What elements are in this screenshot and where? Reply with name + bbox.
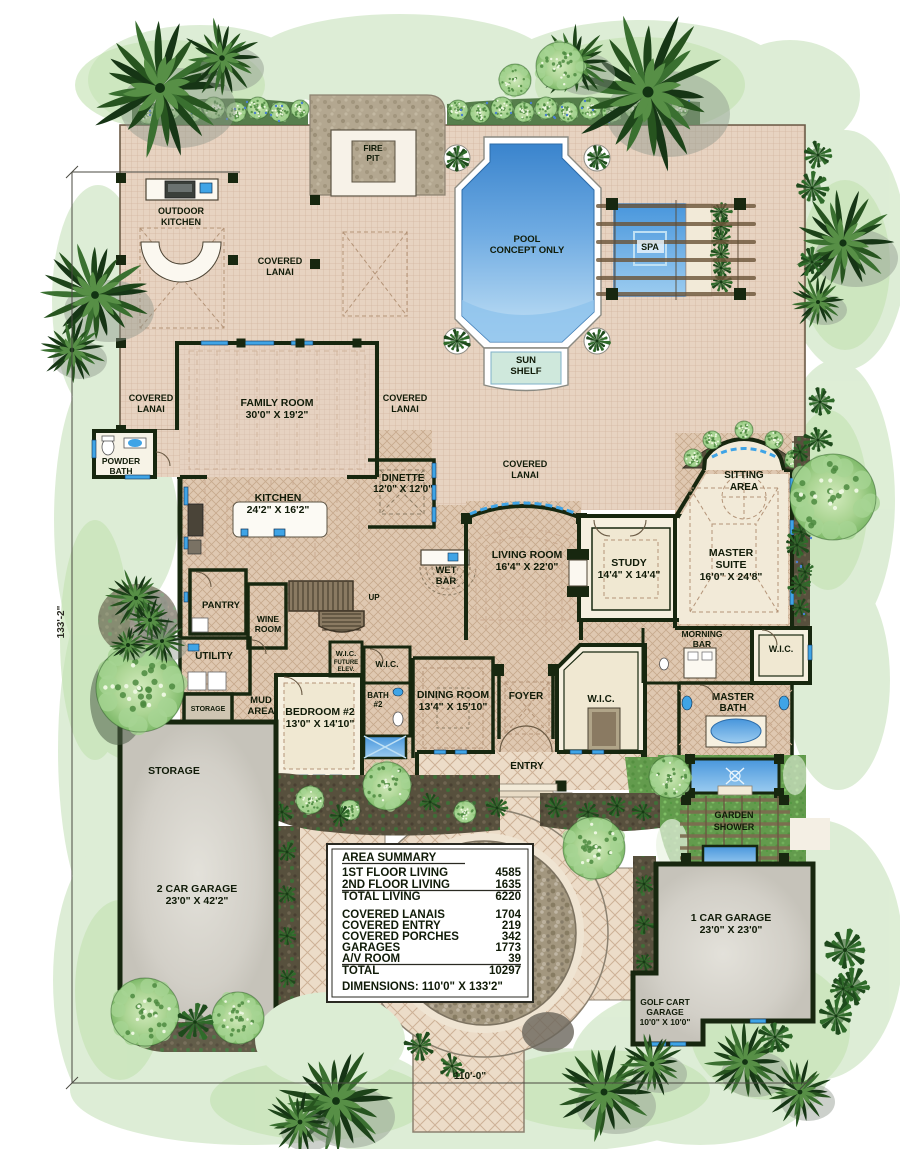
svg-text:MUD: MUD	[250, 695, 272, 706]
svg-text:LANAI: LANAI	[266, 267, 294, 277]
svg-text:110'-0": 110'-0"	[454, 1071, 486, 1082]
svg-text:W.I.C.: W.I.C.	[375, 659, 398, 669]
svg-text:AREA: AREA	[248, 706, 275, 717]
svg-text:COVERED: COVERED	[129, 393, 174, 403]
svg-text:AREA SUMMARY: AREA SUMMARY	[342, 852, 437, 864]
svg-text:W.I.C.: W.I.C.	[769, 644, 794, 654]
svg-text:GOLF CART: GOLF CART	[640, 997, 690, 1007]
svg-text:MASTER: MASTER	[712, 692, 755, 703]
svg-text:BATH: BATH	[719, 703, 746, 714]
svg-text:CONCEPT ONLY: CONCEPT ONLY	[490, 245, 565, 256]
svg-text:DIMENSIONS: 110'0" X 133'2": DIMENSIONS: 110'0" X 133'2"	[342, 981, 503, 993]
svg-text:1 CAR GARAGE: 1 CAR GARAGE	[691, 912, 772, 924]
svg-text:POOL: POOL	[514, 234, 541, 245]
svg-text:KITCHEN: KITCHEN	[255, 492, 302, 504]
svg-text:FUTURE: FUTURE	[334, 660, 358, 666]
svg-text:MORNING: MORNING	[681, 629, 722, 639]
svg-text:39: 39	[508, 953, 521, 965]
svg-text:TOTAL: TOTAL	[342, 965, 379, 977]
svg-text:W.I.C.: W.I.C.	[336, 649, 356, 658]
svg-text:10'0" X 10'0": 10'0" X 10'0"	[640, 1017, 691, 1027]
svg-text:16'0" X 24'8": 16'0" X 24'8"	[700, 571, 763, 583]
svg-text:POWDER: POWDER	[102, 456, 140, 466]
svg-text:FOYER: FOYER	[509, 691, 544, 702]
svg-text:13'0" X 14'10": 13'0" X 14'10"	[286, 718, 355, 730]
svg-text:ENTRY: ENTRY	[510, 761, 544, 772]
svg-text:SUITE: SUITE	[716, 559, 747, 571]
svg-text:OUTDOOR: OUTDOOR	[158, 206, 204, 216]
svg-text:FAMILY ROOM: FAMILY ROOM	[241, 397, 314, 409]
svg-text:12'0" X 12'0": 12'0" X 12'0"	[373, 484, 433, 495]
svg-text:LANAI: LANAI	[391, 404, 419, 414]
svg-text:2 CAR GARAGE: 2 CAR GARAGE	[157, 883, 238, 895]
svg-text:BATH: BATH	[110, 466, 133, 476]
svg-text:KITCHEN: KITCHEN	[161, 217, 201, 227]
svg-text:SHOWER: SHOWER	[714, 822, 755, 832]
svg-text:BAR: BAR	[436, 576, 457, 587]
svg-text:UP: UP	[368, 593, 380, 602]
svg-text:DINING ROOM: DINING ROOM	[417, 689, 490, 701]
svg-text:LANAI: LANAI	[137, 404, 165, 414]
svg-text:GARDEN: GARDEN	[714, 810, 753, 820]
svg-text:W.I.C.: W.I.C.	[587, 694, 614, 705]
svg-text:STORAGE: STORAGE	[191, 706, 226, 713]
svg-text:SUN: SUN	[516, 355, 536, 366]
svg-text:23'0" X 23'0": 23'0" X 23'0"	[700, 924, 763, 936]
svg-text:SITTING: SITTING	[724, 470, 764, 481]
svg-text:STORAGE: STORAGE	[148, 765, 200, 777]
svg-text:SPA: SPA	[641, 242, 659, 252]
svg-text:FIRE: FIRE	[363, 143, 383, 153]
svg-text:BAR: BAR	[693, 639, 711, 649]
svg-text:COVERED: COVERED	[503, 459, 548, 469]
svg-text:BEDROOM #2: BEDROOM #2	[285, 706, 355, 718]
svg-text:COVERED: COVERED	[383, 393, 428, 403]
svg-text:30'0" X 19'2": 30'0" X 19'2"	[246, 409, 309, 421]
svg-text:24'2" X 16'2": 24'2" X 16'2"	[247, 504, 310, 516]
svg-text:AREA: AREA	[730, 482, 758, 493]
svg-text:UTILITY: UTILITY	[195, 651, 233, 662]
svg-text:6220: 6220	[495, 891, 521, 903]
svg-text:COVERED: COVERED	[258, 256, 303, 266]
svg-text:2ND FLOOR LIVING: 2ND FLOOR LIVING	[342, 879, 450, 891]
svg-text:PANTRY: PANTRY	[202, 600, 241, 611]
svg-text:13'4" X 15'10": 13'4" X 15'10"	[419, 701, 488, 713]
svg-text:SHELF: SHELF	[510, 366, 541, 377]
svg-text:WINE: WINE	[257, 614, 280, 624]
svg-text:STUDY: STUDY	[611, 557, 647, 569]
svg-text:A/V ROOM: A/V ROOM	[342, 953, 400, 965]
svg-text:GARAGE: GARAGE	[646, 1007, 684, 1017]
svg-text:PIT: PIT	[366, 153, 380, 163]
svg-text:TOTAL LIVING: TOTAL LIVING	[342, 891, 421, 903]
svg-text:10297: 10297	[489, 965, 521, 977]
svg-text:ROOM: ROOM	[255, 624, 281, 634]
svg-text:133'-2": 133'-2"	[56, 605, 67, 638]
svg-text:#2: #2	[374, 700, 383, 709]
svg-text:4585: 4585	[495, 867, 521, 879]
svg-text:LANAI: LANAI	[511, 470, 539, 480]
svg-text:14'4" X 14'4": 14'4" X 14'4"	[598, 569, 661, 581]
svg-text:1635: 1635	[495, 879, 521, 891]
svg-text:MASTER: MASTER	[709, 547, 754, 559]
svg-text:DINETTE: DINETTE	[382, 473, 425, 484]
svg-text:1ST FLOOR LIVING: 1ST FLOOR LIVING	[342, 867, 448, 879]
svg-text:WET: WET	[435, 565, 456, 576]
svg-text:23'0" X 42'2": 23'0" X 42'2"	[166, 895, 229, 907]
svg-text:BATH: BATH	[367, 691, 389, 700]
svg-text:LIVING ROOM: LIVING ROOM	[492, 549, 563, 561]
svg-text:ELEV.: ELEV.	[338, 667, 355, 673]
svg-text:16'4" X 22'0": 16'4" X 22'0"	[496, 561, 559, 573]
